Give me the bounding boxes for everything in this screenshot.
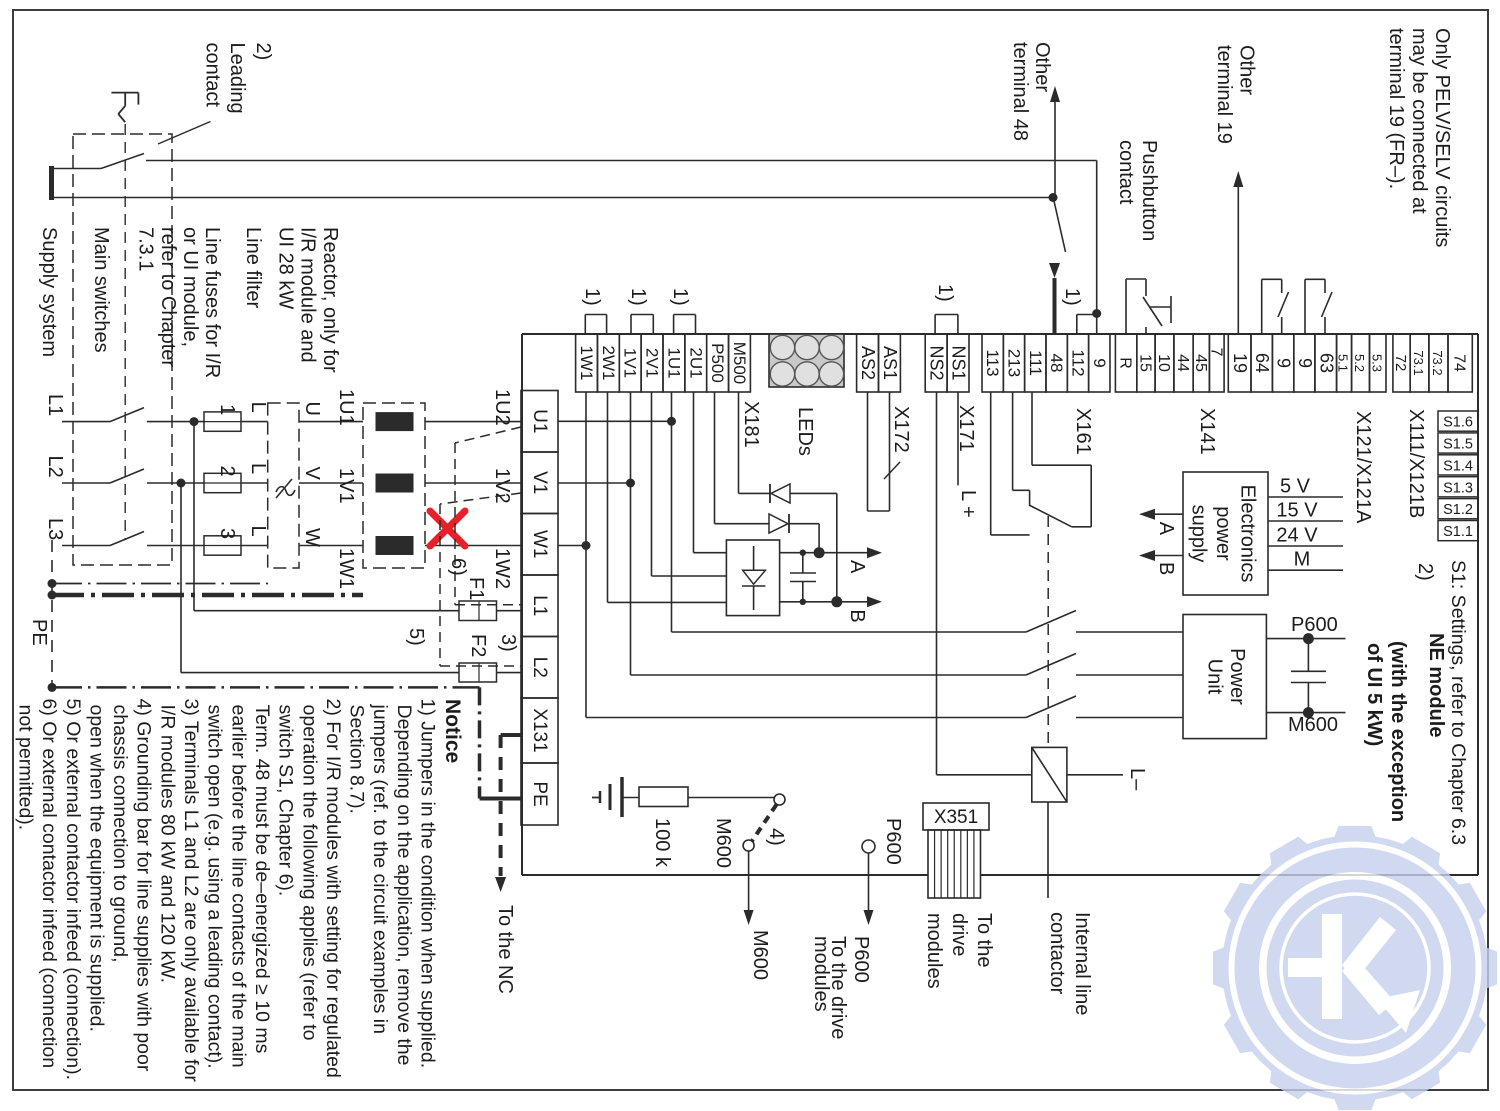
svg-text:open when the equipment is sup: open when the equipment is supplied. <box>85 705 107 1032</box>
svg-text:Only PELV/SELV circuits: Only PELV/SELV circuits <box>1431 28 1453 247</box>
svg-text:72: 72 <box>1392 355 1409 372</box>
svg-text:P600: P600 <box>882 818 904 865</box>
svg-text:1): 1) <box>669 288 691 306</box>
svg-text:1): 1) <box>627 288 649 306</box>
svg-text:R: R <box>1117 357 1134 369</box>
svg-text:I/R modules 80 kW and 120 kW.: I/R modules 80 kW and 120 kW. <box>156 705 178 984</box>
svg-text:63: 63 <box>1316 353 1336 373</box>
svg-text:5.2: 5.2 <box>1352 354 1367 372</box>
svg-text:X141: X141 <box>1196 408 1218 455</box>
svg-text:switch S1, Chapter 6).: switch S1, Chapter 6). <box>275 705 297 897</box>
svg-text:2): 2) <box>1414 563 1436 581</box>
svg-text:chassis connection to ground,: chassis connection to ground, <box>109 705 131 963</box>
svg-text:X131: X131 <box>529 708 550 752</box>
svg-text:To the: To the <box>973 913 995 967</box>
svg-text:V1: V1 <box>529 471 550 494</box>
svg-text:24 V: 24 V <box>1276 525 1318 547</box>
svg-text:refer to Chapter: refer to Chapter <box>157 227 179 367</box>
svg-text:PE: PE <box>28 619 50 646</box>
svg-text:L: L <box>247 526 269 537</box>
svg-text:2V1: 2V1 <box>643 348 662 378</box>
svg-text:W1: W1 <box>529 530 550 559</box>
svg-text:Term. 48 must be de–energized: Term. 48 must be de–energized ≥ 10 ms <box>251 705 273 1054</box>
svg-text:F2: F2 <box>467 634 489 657</box>
svg-text:Section 8.7).: Section 8.7). <box>346 705 368 814</box>
svg-text:terminal 19 (FR–).: terminal 19 (FR–). <box>1385 28 1407 189</box>
svg-text:213: 213 <box>1004 349 1023 377</box>
svg-text:100 k: 100 k <box>651 818 673 868</box>
svg-text:B: B <box>846 609 868 622</box>
svg-text:Power: Power <box>1226 648 1248 705</box>
svg-text:modules: modules <box>810 936 832 1012</box>
svg-text:Supply system: Supply system <box>38 227 60 357</box>
svg-text:1V1: 1V1 <box>621 348 640 378</box>
svg-text:PE: PE <box>529 781 550 806</box>
svg-text:may be connected at: may be connected at <box>1408 28 1430 214</box>
svg-text:45: 45 <box>1192 354 1209 372</box>
svg-text:modules: modules <box>923 913 945 989</box>
svg-text:NE module: NE module <box>1425 633 1447 737</box>
svg-text:contact: contact <box>1115 140 1137 205</box>
svg-text:111: 111 <box>1026 350 1045 376</box>
svg-text:F1: F1 <box>465 577 487 600</box>
svg-text:1W1: 1W1 <box>335 548 357 589</box>
svg-text:L1: L1 <box>44 394 66 416</box>
svg-text:5): 5) <box>405 628 427 646</box>
svg-text:1V1: 1V1 <box>335 468 357 504</box>
svg-text:M: M <box>1294 549 1311 571</box>
svg-text:1): 1) <box>581 288 603 306</box>
svg-text:power: power <box>1212 506 1234 561</box>
svg-text:Other: Other <box>1236 45 1258 95</box>
svg-text:Electronics: Electronics <box>1236 485 1258 583</box>
svg-text:(with the exception: (with the exception <box>1387 641 1409 822</box>
svg-text:X181: X181 <box>740 401 762 448</box>
svg-text:4): 4) <box>765 828 787 846</box>
svg-text:7: 7 <box>1207 348 1224 357</box>
svg-text:M600: M600 <box>749 930 771 980</box>
svg-text:74: 74 <box>1451 354 1468 372</box>
svg-text:2): 2) <box>252 43 274 61</box>
svg-text:73.2: 73.2 <box>1430 350 1445 375</box>
svg-text:1: 1 <box>216 404 238 415</box>
svg-text:3): 3) <box>497 634 519 652</box>
svg-text:earlier before the line contac: earlier before the line contacts of the … <box>227 705 249 1068</box>
svg-text:P600: P600 <box>850 936 872 983</box>
svg-text:NS1: NS1 <box>949 345 969 380</box>
svg-text:contactor: contactor <box>1046 912 1068 995</box>
svg-text:M600: M600 <box>712 818 734 868</box>
svg-text:B: B <box>1155 562 1177 575</box>
svg-text:2W1: 2W1 <box>599 346 618 381</box>
svg-text:Notice: Notice <box>441 699 464 763</box>
svg-text:not permitted).: not permitted). <box>14 705 36 831</box>
svg-text:6) Or external contactor infee: 6) Or external contactor infeed (connect… <box>38 699 60 1069</box>
svg-text:73.1: 73.1 <box>1411 350 1426 375</box>
svg-text:S1.4: S1.4 <box>1443 458 1473 474</box>
svg-text:10: 10 <box>1155 354 1172 372</box>
svg-text:L3: L3 <box>44 518 66 540</box>
svg-text:S1.1: S1.1 <box>1443 524 1473 540</box>
svg-text:S1.6: S1.6 <box>1443 415 1473 431</box>
svg-text:U: U <box>301 402 323 416</box>
svg-text:L +: L + <box>957 490 979 518</box>
svg-text:NS2: NS2 <box>927 345 947 380</box>
svg-text:9: 9 <box>1274 358 1294 368</box>
svg-text:48: 48 <box>1047 354 1066 373</box>
svg-text:M600: M600 <box>1288 714 1338 736</box>
svg-text:X161: X161 <box>1072 408 1094 455</box>
svg-text:U1: U1 <box>529 409 550 433</box>
svg-text:5) Or external contactor infee: 5) Or external contactor infeed (connect… <box>62 699 84 1081</box>
svg-text:L1: L1 <box>529 595 550 616</box>
svg-text:LEDs: LEDs <box>794 407 816 456</box>
svg-text:To the NC: To the NC <box>494 905 516 994</box>
svg-text:I/R module and: I/R module and <box>297 227 319 363</box>
svg-text:P500: P500 <box>708 343 727 383</box>
svg-text:contact: contact <box>202 43 224 108</box>
svg-text:V: V <box>301 467 323 481</box>
svg-text:X111/X121B: X111/X121B <box>1405 409 1427 518</box>
svg-text:P600: P600 <box>1291 614 1338 636</box>
svg-text:9: 9 <box>1090 358 1109 367</box>
svg-text:jumpers (ref. to the circuit e: jumpers (ref. to the circuit examples in <box>369 704 391 1034</box>
svg-text:AS2: AS2 <box>858 346 878 380</box>
svg-text:or UI module,: or UI module, <box>179 227 201 347</box>
svg-text:4) Grounding bar for line supp: 4) Grounding bar for line supplies with … <box>133 699 155 1072</box>
svg-text:1U2: 1U2 <box>491 389 513 426</box>
svg-text:Other: Other <box>1031 42 1053 92</box>
svg-text:Internal line: Internal line <box>1071 912 1093 1015</box>
svg-text:Depending on the application,: Depending on the application, remove the <box>393 705 415 1066</box>
svg-text:AS1: AS1 <box>880 346 900 380</box>
svg-text:L: L <box>247 402 269 413</box>
svg-text:3) Terminals L1 and L2 are onl: 3) Terminals L1 and L2 are only availabl… <box>180 699 202 1083</box>
svg-text:W: W <box>301 528 323 547</box>
svg-text:1W2: 1W2 <box>491 548 513 589</box>
svg-text:19: 19 <box>1230 353 1250 373</box>
svg-text:switch open (e.g. using a lead: switch open (e.g. using a leading contac… <box>204 705 226 1069</box>
svg-text:X121/X121A: X121/X121A <box>1352 411 1374 524</box>
svg-text:S1: Settings, refer to Chapter: S1: Settings, refer to Chapter 6.3 <box>1447 560 1469 845</box>
svg-text:drive: drive <box>948 913 970 956</box>
svg-text:A: A <box>1155 522 1177 536</box>
svg-text:X172: X172 <box>890 406 912 453</box>
svg-text:terminal 19: terminal 19 <box>1213 45 1235 144</box>
svg-text:Reactor, only for: Reactor, only for <box>319 227 341 373</box>
svg-text:L: L <box>247 463 269 474</box>
svg-text:A: A <box>846 560 868 574</box>
svg-text:L2: L2 <box>44 456 66 478</box>
svg-text:1V2: 1V2 <box>491 468 513 504</box>
svg-text:supply: supply <box>1187 505 1209 563</box>
svg-text:S1.5: S1.5 <box>1443 437 1473 453</box>
svg-text:L–: L– <box>1126 768 1148 791</box>
svg-text:S1.3: S1.3 <box>1443 480 1473 496</box>
svg-text:112: 112 <box>1068 349 1087 376</box>
svg-text:1W1: 1W1 <box>577 346 596 381</box>
svg-text:Leading: Leading <box>226 43 248 114</box>
svg-text:UI 28 kW: UI 28 kW <box>274 227 296 309</box>
svg-text:1U1: 1U1 <box>664 347 683 378</box>
svg-text:S1.2: S1.2 <box>1443 502 1473 518</box>
svg-text:6): 6) <box>447 558 469 576</box>
svg-text:L2: L2 <box>529 657 550 678</box>
svg-text:Main switches: Main switches <box>90 227 112 353</box>
svg-text:1): 1) <box>1061 288 1083 306</box>
svg-text:of UI 5 kW): of UI 5 kW) <box>1363 643 1385 746</box>
svg-text:44: 44 <box>1174 354 1191 372</box>
svg-text:2: 2 <box>216 466 238 477</box>
svg-text:5.1: 5.1 <box>1336 354 1351 372</box>
svg-text:5.3: 5.3 <box>1369 354 1384 372</box>
svg-text:Line fuses for I/R: Line fuses for I/R <box>201 227 223 378</box>
svg-text:M500: M500 <box>730 342 749 385</box>
svg-text:Unit: Unit <box>1203 659 1225 695</box>
svg-text:1) Jumpers in the condition wh: 1) Jumpers in the condition when supplie… <box>417 699 439 1069</box>
svg-text:terminal 48: terminal 48 <box>1009 42 1031 141</box>
svg-text:1U1: 1U1 <box>335 389 357 426</box>
svg-text:Pushbutton: Pushbutton <box>1138 140 1160 241</box>
svg-text:1): 1) <box>934 284 956 302</box>
svg-text:15: 15 <box>1136 354 1153 372</box>
svg-text:operation the following applie: operation the following applies (refer t… <box>298 705 320 1041</box>
svg-text:7.3.1: 7.3.1 <box>135 227 157 271</box>
svg-text:5 V: 5 V <box>1280 476 1311 498</box>
svg-text:3: 3 <box>216 528 238 539</box>
svg-text:2) For I/R modules with settin: 2) For I/R modules with setting for regu… <box>322 699 344 1078</box>
svg-text:9: 9 <box>1295 358 1315 368</box>
svg-text:X351: X351 <box>934 807 978 828</box>
svg-text:15 V: 15 V <box>1276 500 1318 522</box>
svg-text:113: 113 <box>983 349 1002 376</box>
svg-text:Line filter: Line filter <box>242 227 264 308</box>
svg-text:64: 64 <box>1252 353 1272 373</box>
svg-text:2U1: 2U1 <box>686 347 705 378</box>
